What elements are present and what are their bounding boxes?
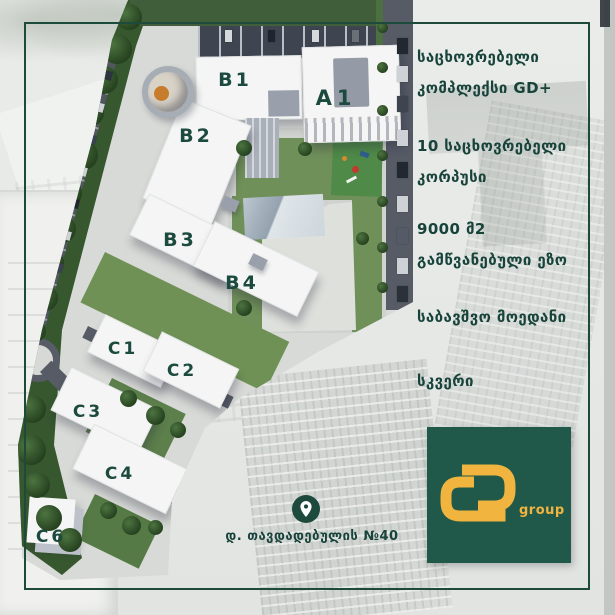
info-green-yard: 9000 მ2 გამწვანებული ეზო xyxy=(417,214,602,276)
glass-atrium xyxy=(243,194,325,240)
location-pin-icon xyxy=(291,494,321,524)
parked-car xyxy=(268,30,275,42)
parked-car xyxy=(397,258,408,274)
faded-tower-bottom xyxy=(237,359,452,615)
tree xyxy=(120,390,137,407)
tree xyxy=(24,472,50,498)
tree xyxy=(377,105,388,116)
parked-car xyxy=(352,30,359,42)
parked-car xyxy=(397,196,408,212)
building-label-B1: B1 xyxy=(218,69,252,91)
parked-car xyxy=(312,30,319,42)
info-line: გამწვანებული ეზო xyxy=(417,245,602,276)
parked-car xyxy=(397,130,408,146)
tree xyxy=(170,422,186,438)
tree xyxy=(146,406,165,425)
site-plan-poster: A1 B1 B2 B3 B4 C1 C2 C3 C4 C6 საცხოვრებე… xyxy=(0,0,615,615)
tree xyxy=(236,300,252,316)
building-label-C3: C3 xyxy=(73,402,103,422)
building-label-C2: C2 xyxy=(167,361,197,381)
playground-equipment xyxy=(352,166,359,173)
building-label-B4: B4 xyxy=(225,272,259,294)
playground-equipment xyxy=(342,156,347,161)
courtyard-lawn xyxy=(352,200,382,332)
tree xyxy=(377,282,388,293)
parked-car xyxy=(397,228,408,244)
building-label-C1: C1 xyxy=(108,339,138,359)
parked-car xyxy=(397,96,408,112)
parked-car xyxy=(397,286,408,302)
sculpture xyxy=(154,86,169,101)
tree xyxy=(377,150,388,161)
info-residential-complex: საცხოვრებელი კომპლექსი GD+ xyxy=(417,42,602,104)
tree xyxy=(377,196,388,207)
info-line: საცხოვრებელი xyxy=(417,42,602,73)
building-label-B2: B2 xyxy=(179,125,213,147)
gd-monogram-icon xyxy=(438,461,518,525)
building-label-B3: B3 xyxy=(163,229,197,251)
info-line: სკვერი xyxy=(417,366,602,397)
parked-car xyxy=(225,30,232,42)
logo-caption: group xyxy=(519,503,565,518)
tree xyxy=(377,22,388,33)
gd-group-logo: group xyxy=(427,427,571,563)
parked-car xyxy=(397,66,408,82)
building-label-A1: A1 xyxy=(316,86,357,110)
tree xyxy=(356,232,369,245)
faded-edge-strip xyxy=(604,0,615,615)
building-label-C6: C6 xyxy=(36,527,66,547)
info-line: საბავშვო მოედანი xyxy=(417,302,602,333)
tree xyxy=(100,502,117,519)
info-line: 9000 მ2 xyxy=(417,214,602,245)
roof-core xyxy=(268,90,300,117)
info-playground: საბავშვო მოედანი xyxy=(417,302,602,333)
info-buildings-count: 10 საცხოვრებელი კორპუსი xyxy=(417,131,602,193)
tree xyxy=(298,142,312,156)
tree xyxy=(377,242,388,253)
info-line: კორპუსი xyxy=(417,162,602,193)
info-square: სკვერი xyxy=(417,366,602,397)
parked-car xyxy=(397,162,408,178)
lawn-strip-top xyxy=(130,0,398,26)
roof-vents xyxy=(305,115,401,142)
info-line: კომპლექსი GD+ xyxy=(417,73,602,104)
dark-window-notch xyxy=(600,0,610,27)
tree xyxy=(122,516,141,535)
building-label-C4: C4 xyxy=(105,464,135,484)
tree xyxy=(377,62,388,73)
parked-car xyxy=(397,38,408,54)
info-line: 10 საცხოვრებელი xyxy=(417,131,602,162)
tree xyxy=(16,435,46,465)
address-text: დ. თავდადებულის №40 xyxy=(222,529,402,544)
tree xyxy=(148,520,163,535)
tree xyxy=(236,140,252,156)
